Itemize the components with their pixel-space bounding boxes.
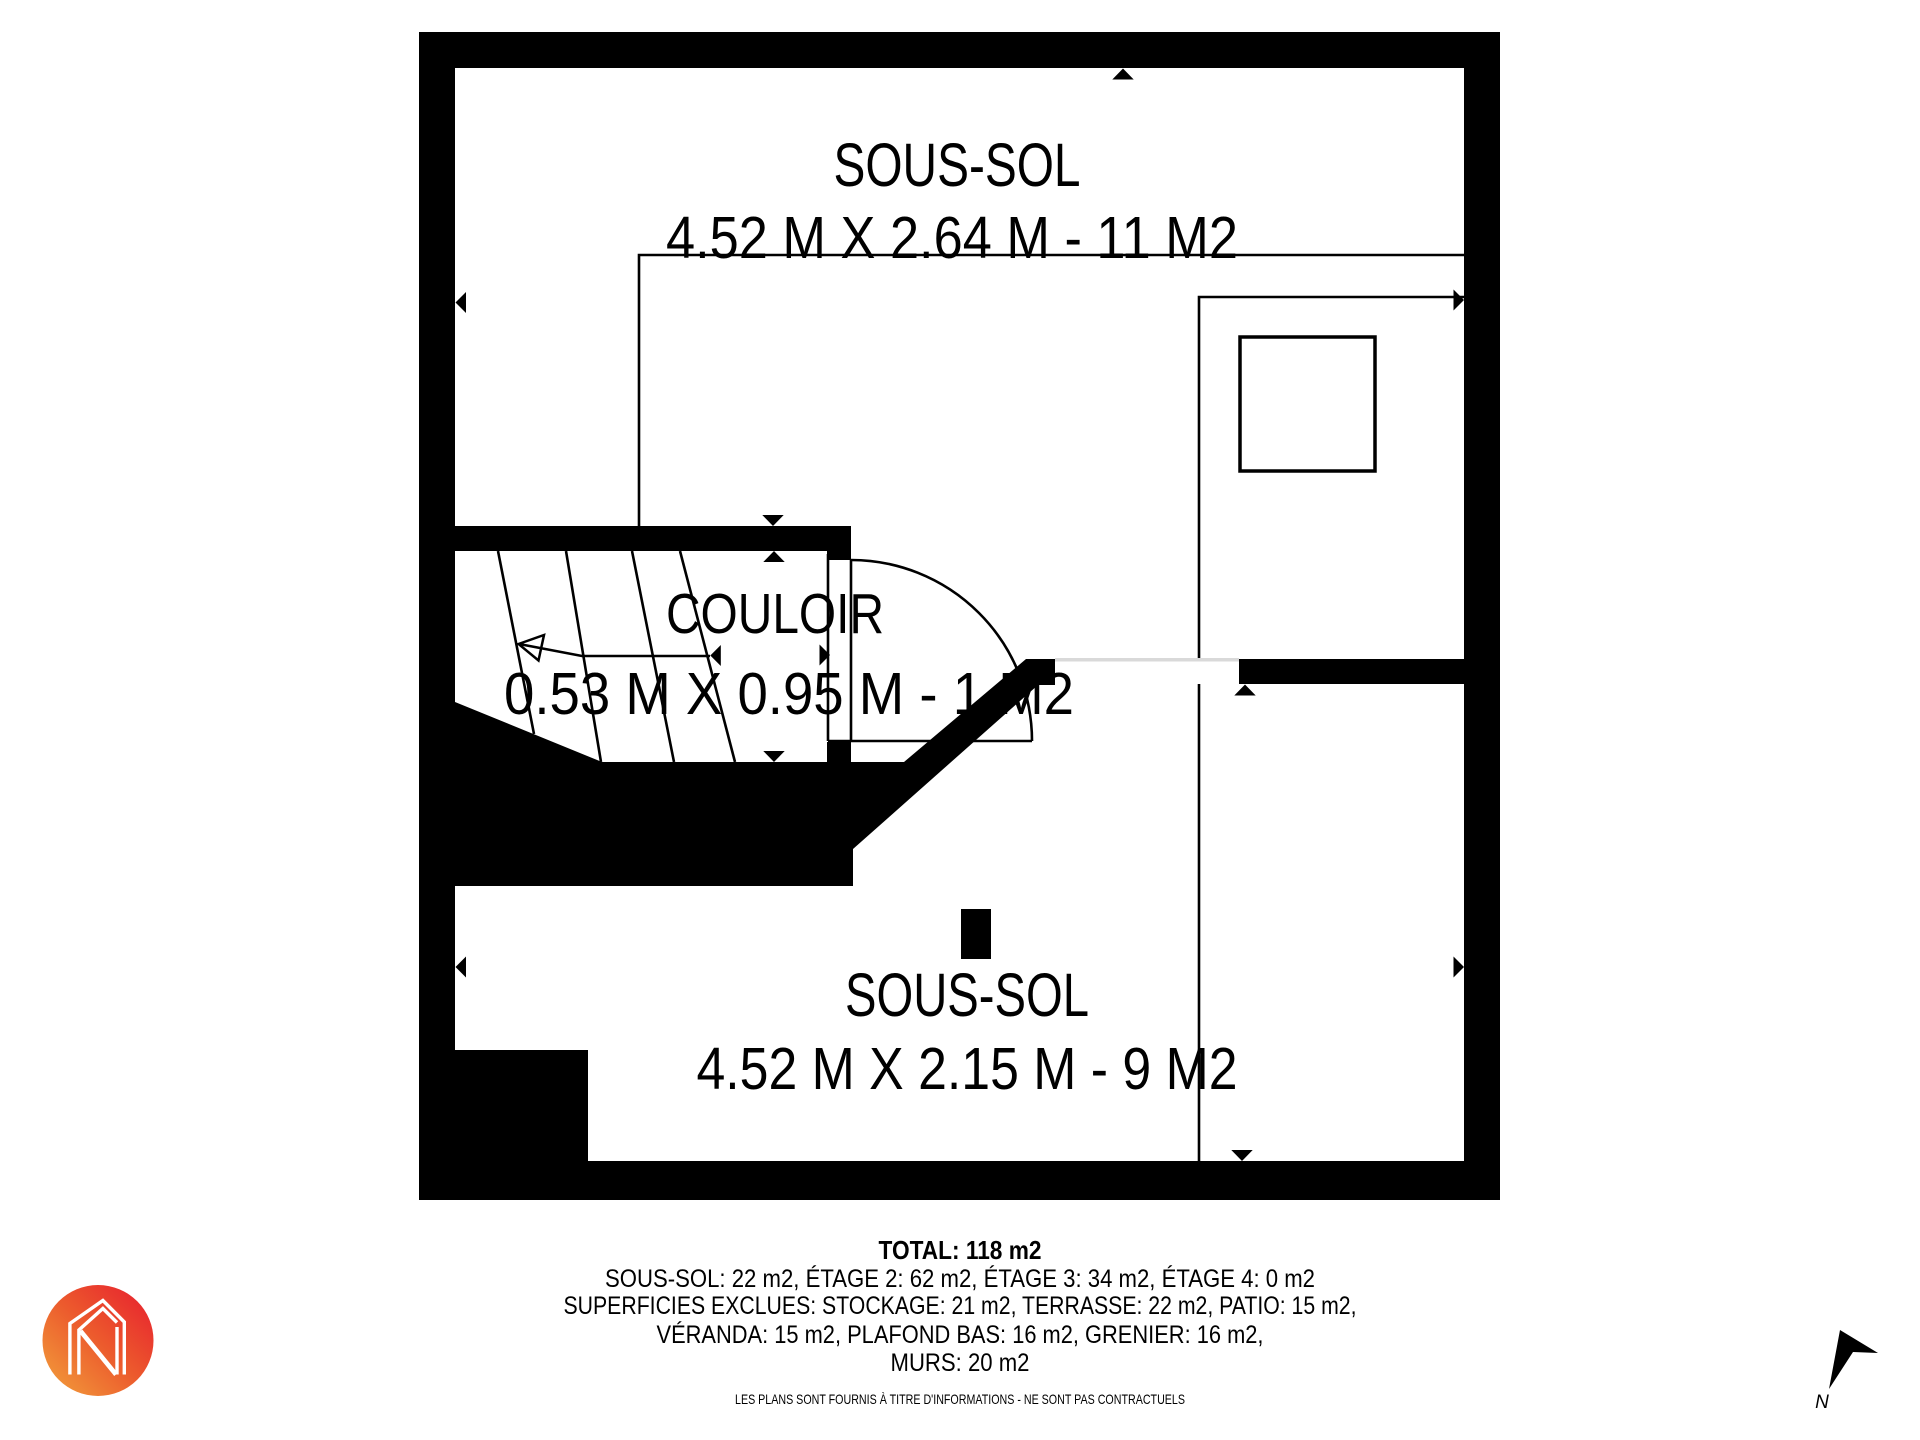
- svg-text:TOTAL: 118 m2: TOTAL: 118 m2: [879, 1235, 1042, 1265]
- svg-text:SOUS-SOL: SOUS-SOL: [834, 131, 1081, 199]
- svg-text:SOUS-SOL: 22 m2, ÉTAGE 2: 62 m: SOUS-SOL: 22 m2, ÉTAGE 2: 62 m2, ÉTAGE 3…: [605, 1264, 1315, 1293]
- svg-text:4.52 M X 2.64 M - 11 M2: 4.52 M X 2.64 M - 11 M2: [666, 205, 1238, 271]
- svg-text:COULOIR: COULOIR: [666, 582, 884, 646]
- svg-text:MURS: 20 m2: MURS: 20 m2: [891, 1349, 1030, 1377]
- svg-text:LES PLANS SONT FOURNIS À TITRE: LES PLANS SONT FOURNIS À TITRE D'INFORMA…: [735, 1391, 1185, 1407]
- svg-text:0.53 M X 0.95 M - 1 M2: 0.53 M X 0.95 M - 1 M2: [504, 661, 1074, 727]
- svg-text:VÉRANDA: 15 m2, PLAFOND BAS: 1: VÉRANDA: 15 m2, PLAFOND BAS: 16 m2, GREN…: [657, 1320, 1264, 1349]
- svg-text:SOUS-SOL: SOUS-SOL: [845, 961, 1089, 1029]
- svg-text:4.52 M X 2.15 M - 9 M2: 4.52 M X 2.15 M - 9 M2: [697, 1036, 1238, 1102]
- svg-text:SUPERFICIES EXCLUES: STOCKAGE:: SUPERFICIES EXCLUES: STOCKAGE: 21 m2, TE…: [564, 1292, 1357, 1320]
- svg-text:N: N: [1815, 1392, 1829, 1413]
